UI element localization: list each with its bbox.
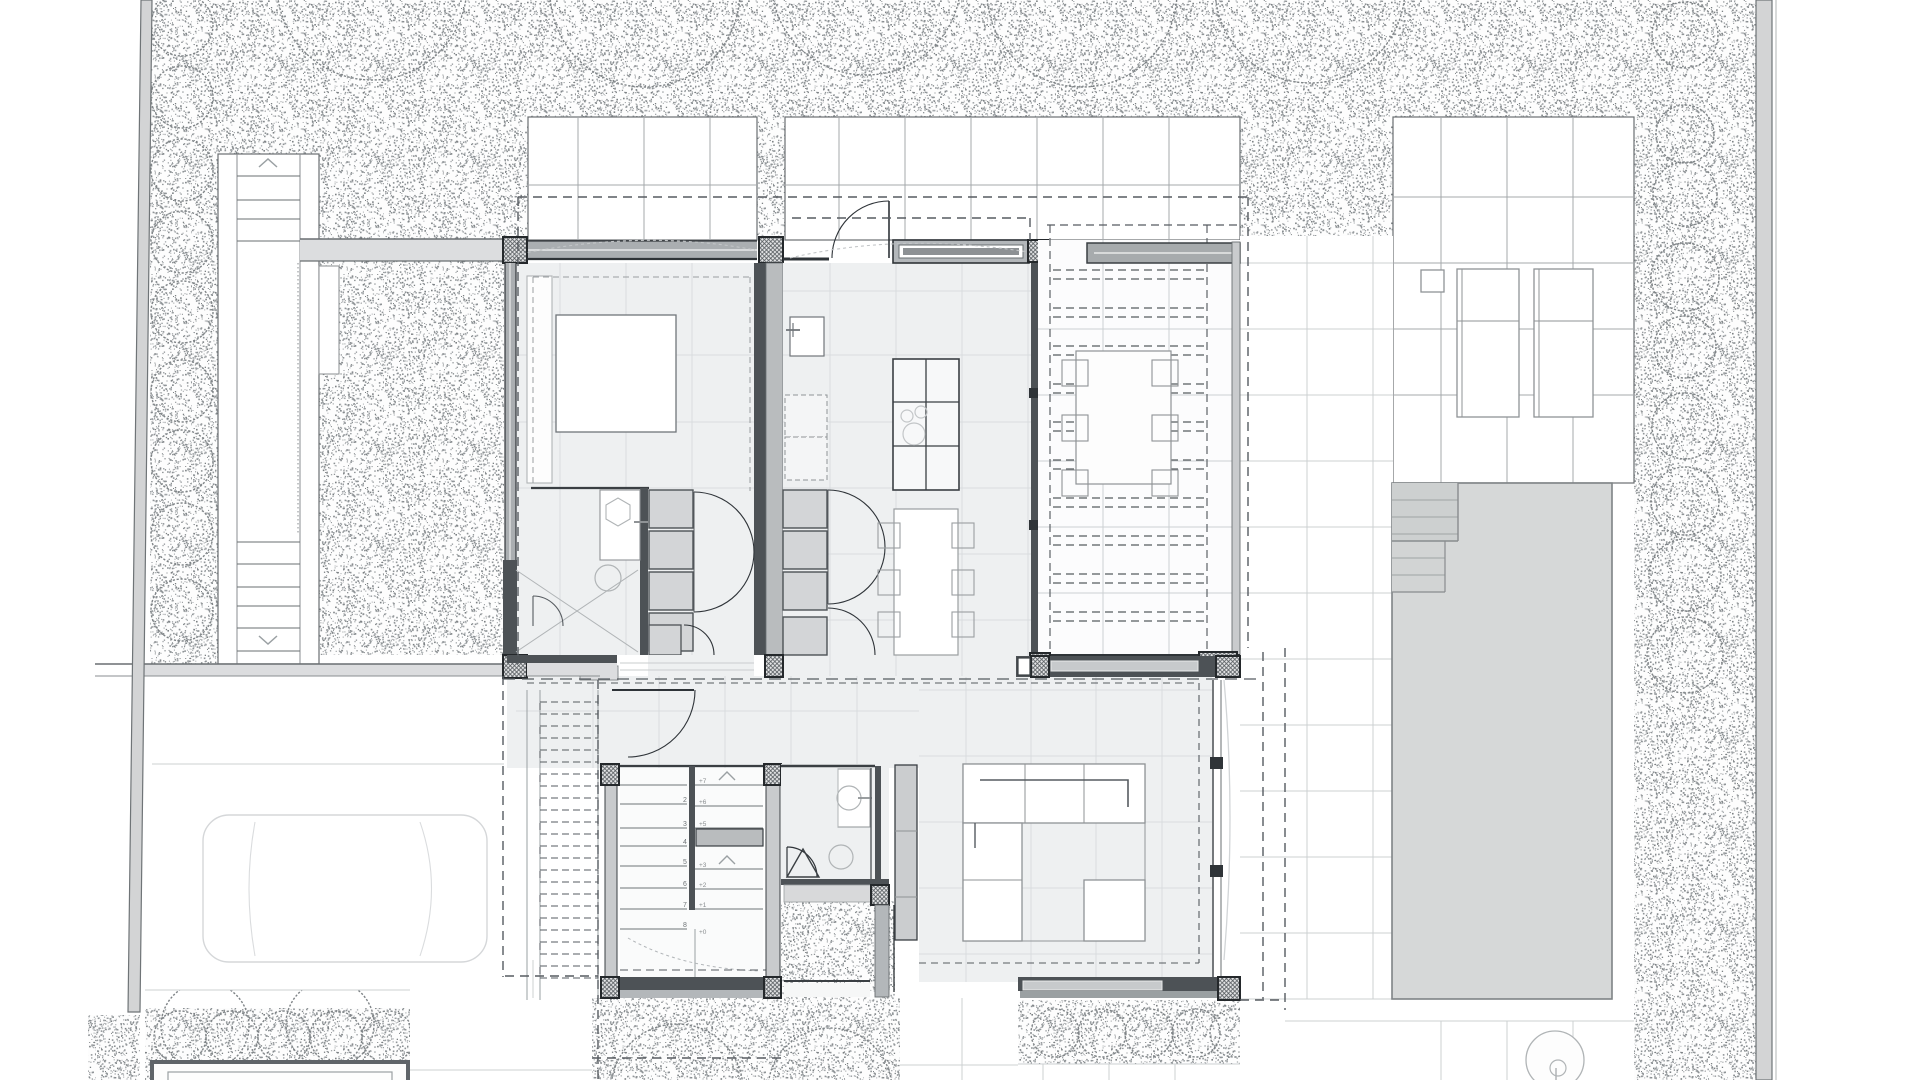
svg-text:4: 4 [683, 839, 687, 846]
svg-text:+0: +0 [699, 929, 707, 936]
svg-text:+7: +7 [699, 778, 707, 785]
svg-text:+1: +1 [699, 902, 707, 909]
svg-text:7: 7 [683, 902, 687, 909]
svg-text:3: 3 [683, 821, 687, 828]
svg-text:6: 6 [683, 881, 687, 888]
svg-text:2: 2 [683, 797, 687, 804]
svg-text:+5: +5 [699, 821, 707, 828]
svg-text:+3: +3 [699, 862, 707, 869]
svg-text:+6: +6 [699, 799, 707, 806]
svg-text:+2: +2 [699, 882, 707, 889]
svg-text:5: 5 [683, 859, 687, 866]
svg-text:8: 8 [683, 922, 687, 929]
